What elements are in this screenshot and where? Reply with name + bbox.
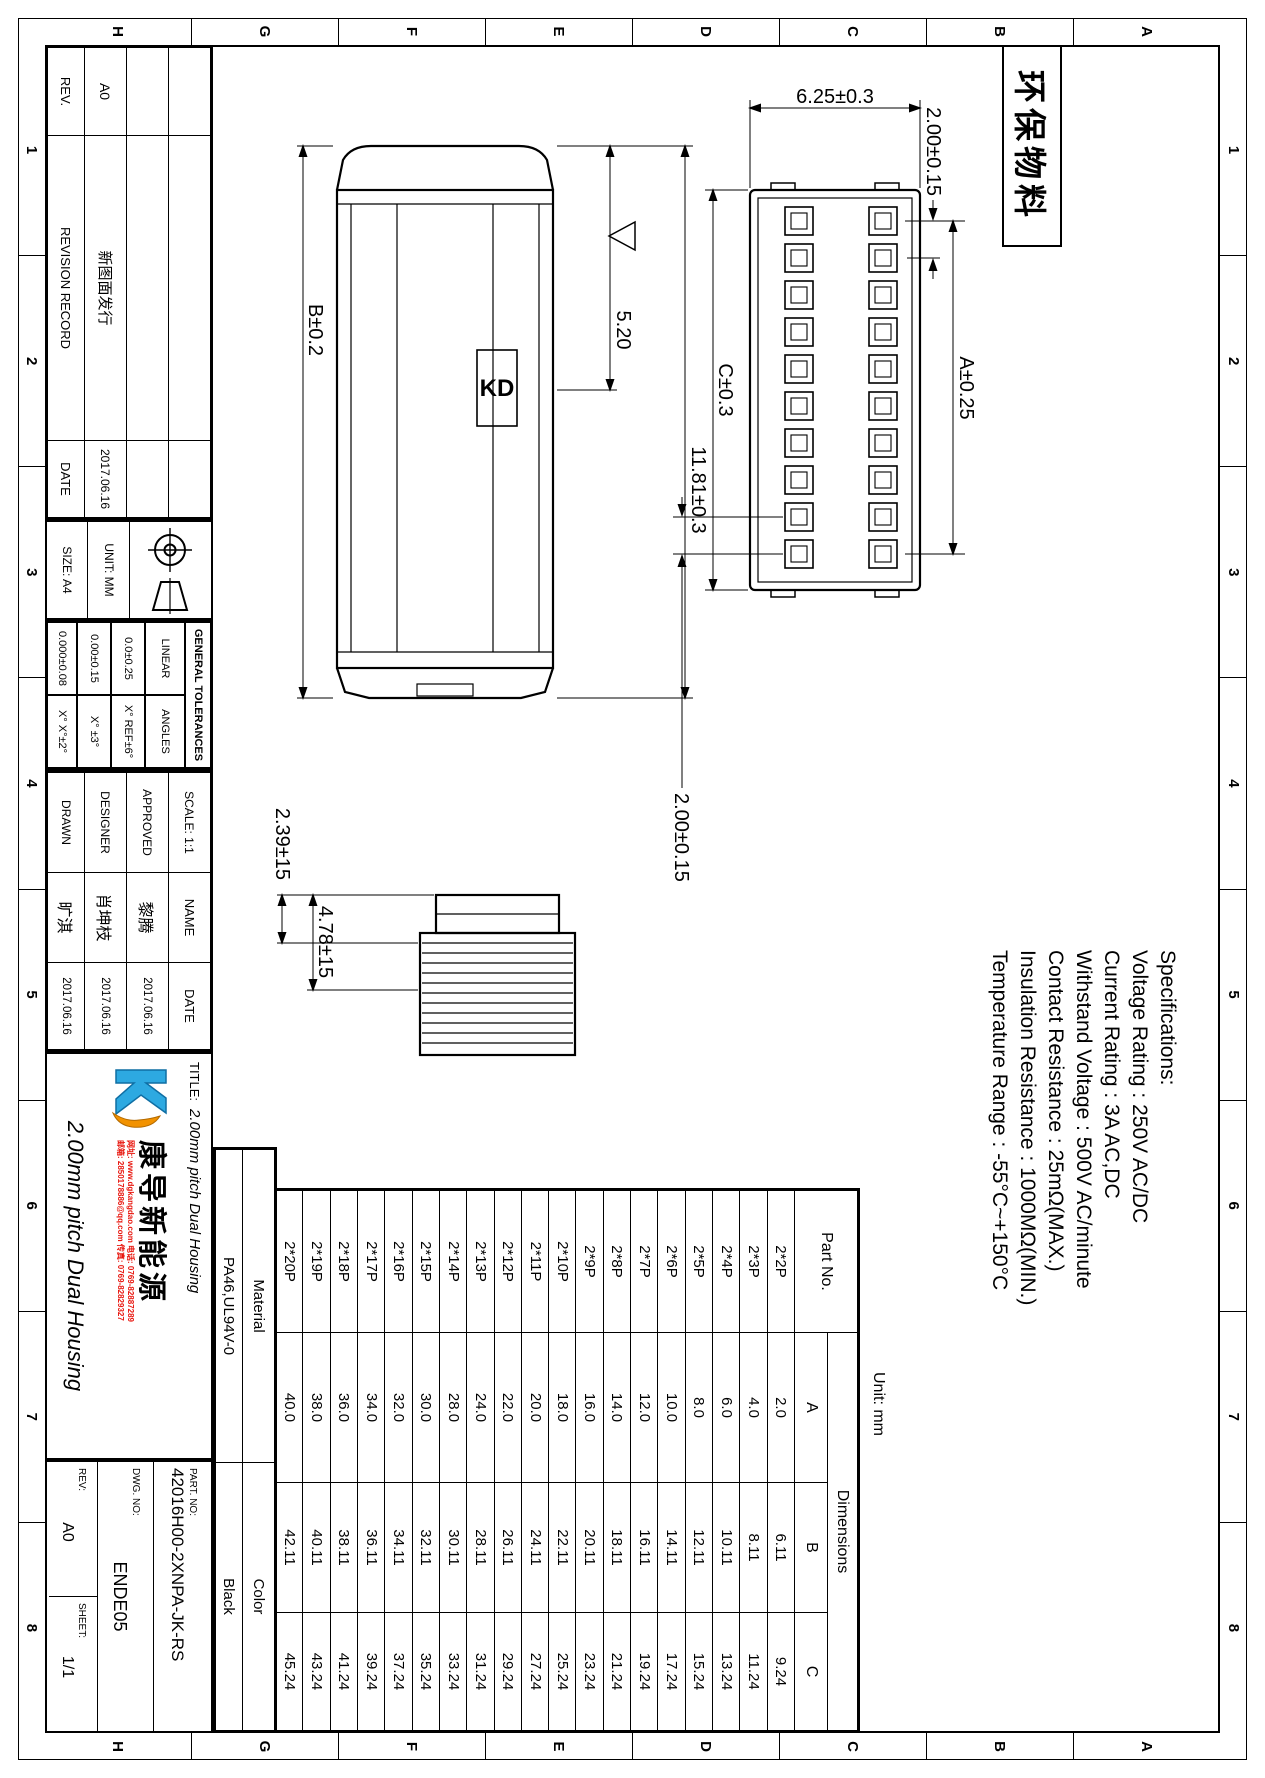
angles-label: ANGLES: [145, 695, 185, 768]
dim-c-cell: 41.24: [330, 1613, 357, 1731]
scale-cell: SCALE: 1:1: [169, 773, 211, 873]
part-number-cell: 2*5P: [685, 1191, 712, 1333]
parts-table-header-partno: Part No.: [795, 1191, 858, 1333]
dim-pitch-bottom: 2.00±0.15: [670, 793, 692, 882]
parts-table-header-c: C: [795, 1613, 828, 1731]
dim-a-cell: 8.0: [685, 1333, 712, 1483]
dim-c-cell: 11.24: [740, 1613, 767, 1731]
part-number-cell: 2*9P: [576, 1191, 603, 1333]
dim-b-cell: 14.11: [658, 1483, 685, 1613]
kd-logo-icon: [110, 1064, 172, 1132]
linear-tol-2: 0.00±0.15: [77, 622, 111, 695]
contact-cavities: [785, 207, 897, 568]
side-view: [337, 146, 635, 698]
angle-tol-3: X° X°±2°: [47, 695, 77, 768]
part-number-cell: 2*3P: [740, 1191, 767, 1333]
revision-rev-label: REV.: [48, 48, 85, 136]
parts-table-row: 2*17P 34.0 36.11 39.24: [358, 1191, 385, 1731]
dim-a-cell: 6.0: [713, 1333, 740, 1483]
dim-c-cell: 43.24: [303, 1613, 330, 1731]
dim-a-cell: 38.0: [303, 1333, 330, 1483]
dim-c-cell: 31.24: [467, 1613, 494, 1731]
dim-a: A±0.25: [955, 356, 977, 419]
drawn-name: 旷淇: [48, 873, 85, 963]
part-number-cell: 2*12P: [494, 1191, 521, 1333]
material-color-block: Material Color PA46,UL94V-0 Black: [213, 1147, 277, 1733]
approved-date: 2017.06.16: [127, 963, 169, 1050]
revision-table: A0 新图面发行 2017.06.16 REV. REVISION RECORD…: [45, 45, 213, 520]
dim-a-cell: 40.0: [276, 1333, 303, 1483]
dim-a-cell: 34.0: [358, 1333, 385, 1483]
dim-b-cell: 24.11: [521, 1483, 548, 1613]
angle-tol-1: X° REF±6°: [111, 695, 145, 768]
dim-c-cell: 23.24: [576, 1613, 603, 1731]
dim-c-cell: 21.24: [603, 1613, 630, 1731]
parts-table-row: 2*7P 12.0 16.11 19.24: [631, 1191, 658, 1731]
dim-c-cell: 9.24: [767, 1613, 794, 1731]
dim-b-cell: 28.11: [467, 1483, 494, 1613]
partno-cell: PART. NO: 42016H00-2XNPA-JK-RS DWG. NO: …: [45, 1460, 213, 1733]
dim-b-cell: 18.11: [603, 1483, 630, 1613]
part-number-cell: 2*20P: [276, 1191, 303, 1333]
parts-table-row: 2*6P 10.0 14.11 17.24: [658, 1191, 685, 1731]
dim-a-cell: 18.0: [549, 1333, 576, 1483]
end-view: [420, 895, 575, 1055]
approved-label: APPROVED: [127, 773, 169, 873]
part-number-cell: 2*18P: [330, 1191, 357, 1333]
date-header: DATE: [169, 963, 211, 1050]
part-no-value: 42016H00-2XNPA-JK-RS: [167, 1468, 187, 1661]
rev-label: REV:: [77, 1468, 88, 1596]
revision-date-label: DATE: [48, 441, 85, 518]
parts-table: Part No. Dimensions A B C 2*2P 2.0 6.11 …: [273, 1188, 860, 1733]
dim-c-cell: 29.24: [494, 1613, 521, 1731]
dim-a-cell: 24.0: [467, 1333, 494, 1483]
dim-239: 2.39±15: [271, 808, 293, 880]
dim-b-cell: 12.11: [685, 1483, 712, 1613]
dim-c-cell: 27.24: [521, 1613, 548, 1731]
parts-table-row: 2*11P 20.0 24.11 27.24: [521, 1191, 548, 1731]
part-number-cell: 2*13P: [467, 1191, 494, 1333]
dim-b: B±0.2: [304, 304, 326, 356]
parts-table-row: 2*19P 38.0 40.11 43.24: [303, 1191, 330, 1731]
dim-b-cell: 42.11: [276, 1483, 303, 1613]
dim-b-cell: 26.11: [494, 1483, 521, 1613]
part-number-cell: 2*8P: [603, 1191, 630, 1333]
parts-table-row: 2*10P 18.0 22.11 25.24: [549, 1191, 576, 1731]
dim-c-cell: 25.24: [549, 1613, 576, 1731]
part-number-cell: 2*2P: [767, 1191, 794, 1333]
signature-block: SCALE: 1:1 NAME DATE APPROVED 黎腾 2017.06…: [45, 770, 213, 1052]
parts-table-row: 2*14P 28.0 30.11 33.24: [439, 1191, 466, 1731]
part-number-cell: 2*6P: [658, 1191, 685, 1333]
gate-mark-triangle: [609, 222, 635, 250]
dim-c-cell: 37.24: [385, 1613, 412, 1731]
dim-b-cell: 22.11: [549, 1483, 576, 1613]
unit-label: UNIT: MM: [88, 522, 130, 618]
material-value: PA46,UL94V-0: [216, 1150, 243, 1463]
name-header: NAME: [169, 873, 211, 963]
designer-date: 2017.06.16: [85, 963, 127, 1050]
parts-table-row: 2*9P 16.0 20.11 23.24: [576, 1191, 603, 1731]
dim-a-cell: 20.0: [521, 1333, 548, 1483]
revision-desc-value: 新图面发行: [85, 136, 127, 441]
part-number-cell: 2*4P: [713, 1191, 740, 1333]
tolerances-block: GENERAL TOLERANCES LINEAR ANGLES 0.0±0.2…: [45, 620, 213, 770]
dim-a-cell: 4.0: [740, 1333, 767, 1483]
drawing-sheet: 12345678 12345678 ABCDEFGH ABCDEFGH 环保物料…: [0, 0, 1265, 1778]
parts-table-row: 2*3P 4.0 8.11 11.24: [740, 1191, 767, 1731]
parts-table-header-dimensions: Dimensions: [828, 1333, 858, 1731]
parts-table-row: 2*2P 2.0 6.11 9.24: [767, 1191, 794, 1731]
dim-a-cell: 2.0: [767, 1333, 794, 1483]
part-number-cell: 2*15P: [412, 1191, 439, 1333]
unit-note: Unit: mm: [869, 1372, 887, 1436]
dim-a-cell: 22.0: [494, 1333, 521, 1483]
dim-b-cell: 10.11: [713, 1483, 740, 1613]
logo-contact-line2: 邮箱: 2850178886@qq.com 传真: 0769-82829327: [115, 1140, 125, 1322]
designer-label: DESIGNER: [85, 773, 127, 873]
title-label: TITLE:: [188, 1062, 203, 1101]
revision-date-value: 2017.06.16: [85, 441, 127, 518]
dim-a-cell: 12.0: [631, 1333, 658, 1483]
parts-table-row: 2*8P 14.0 18.11 21.24: [603, 1191, 630, 1731]
side-view-dimensions: [297, 146, 693, 698]
dim-b-cell: 8.11: [740, 1483, 767, 1613]
part-number-cell: 2*19P: [303, 1191, 330, 1333]
dim-478: 4.78±15: [314, 906, 336, 978]
front-view-dimensions: [673, 100, 965, 788]
dim-c-cell: 33.24: [439, 1613, 466, 1731]
part-number-cell: 2*16P: [385, 1191, 412, 1333]
revision-desc-label: REVISION RECORD: [48, 136, 85, 441]
dim-c: C±0.3: [714, 363, 736, 416]
dim-b-cell: 38.11: [330, 1483, 357, 1613]
projection-size-block: UNIT: MM SIZE: A4: [45, 520, 213, 620]
dim-pitch-top: 2.00±0.15: [922, 107, 944, 196]
dim-c-cell: 45.24: [276, 1613, 303, 1731]
parts-table-row: 2*15P 30.0 32.11 35.24: [412, 1191, 439, 1731]
dim-b-cell: 20.11: [576, 1483, 603, 1613]
color-label: Color: [243, 1463, 275, 1731]
color-value: Black: [216, 1463, 243, 1731]
dim-b-cell: 32.11: [412, 1483, 439, 1613]
drawing-page: 12345678 12345678 ABCDEFGH ABCDEFGH 环保物料…: [0, 0, 1265, 1778]
parts-table-row: 2*20P 40.0 42.11 45.24: [276, 1191, 303, 1731]
parts-table-header-b: B: [795, 1483, 828, 1613]
approved-name: 黎腾: [127, 873, 169, 963]
dim-a-cell: 14.0: [603, 1333, 630, 1483]
part-number-cell: 2*10P: [549, 1191, 576, 1333]
dim-a-cell: 32.0: [385, 1333, 412, 1483]
front-view: [750, 183, 920, 597]
dim-a-cell: 16.0: [576, 1333, 603, 1483]
parts-table-row: 2*4P 6.0 10.11 13.24: [713, 1191, 740, 1731]
kd-mark: KD: [480, 375, 515, 402]
dim-b-cell: 36.11: [358, 1483, 385, 1613]
material-label: Material: [243, 1150, 275, 1463]
dim-1181: 11.81±0.3: [687, 446, 709, 533]
parts-table-row: 2*5P 8.0 12.11 15.24: [685, 1191, 712, 1731]
angle-tol-2: X° ±3°: [77, 695, 111, 768]
end-view-dimensions: [277, 895, 434, 990]
dim-b-cell: 16.11: [631, 1483, 658, 1613]
parts-table-header-a: A: [795, 1333, 828, 1483]
parts-table-row: 2*13P 24.0 28.11 31.24: [467, 1191, 494, 1731]
drawn-date: 2017.06.16: [48, 963, 85, 1050]
parts-table-row: 2*12P 22.0 26.11 29.24: [494, 1191, 521, 1731]
dim-a-cell: 36.0: [330, 1333, 357, 1483]
dwg-no-value: ENDE05: [110, 1561, 131, 1631]
dim-c-cell: 19.24: [631, 1613, 658, 1731]
third-angle-projection-symbol: [129, 522, 211, 618]
tolerances-title: GENERAL TOLERANCES: [185, 622, 211, 768]
drawing-title-small: 2.00mm pitch Dual Housing: [187, 1109, 204, 1293]
sheet-label: SHEET:: [77, 1603, 88, 1731]
part-number-cell: 2*11P: [521, 1191, 548, 1333]
logo-brand-text: 康导新能源: [135, 1140, 167, 1322]
part-no-label: PART. NO:: [187, 1468, 198, 1516]
linear-tol-3: 0.000±0.08: [47, 622, 77, 695]
parts-table-row: 2*16P 32.0 34.11 37.24: [385, 1191, 412, 1731]
dim-c-cell: 35.24: [412, 1613, 439, 1731]
logo-contact-line1: 网址: www.dgkangdao.com 电话: 0769-82887289: [125, 1140, 135, 1322]
size-label: SIZE: A4: [47, 522, 88, 618]
linear-tol-1: 0.0±0.25: [111, 622, 145, 695]
part-number-cell: 2*14P: [439, 1191, 466, 1333]
dim-a-cell: 10.0: [658, 1333, 685, 1483]
dim-c-cell: 13.24: [713, 1613, 740, 1731]
title-logo-cell: TITLE: 2.00mm pitch Dual Housing 康导新能源 网…: [45, 1052, 213, 1460]
dim-a-cell: 28.0: [439, 1333, 466, 1483]
dim-520: 5.20: [612, 311, 634, 350]
linear-label: LINEAR: [145, 622, 185, 695]
drawn-label: DRAWN: [48, 773, 85, 873]
part-number-cell: 2*7P: [631, 1191, 658, 1333]
dim-a-cell: 30.0: [412, 1333, 439, 1483]
dim-625: 6.25±0.3: [796, 86, 874, 108]
parts-table-row: 2*18P 36.0 38.11 41.24: [330, 1191, 357, 1731]
dim-c-cell: 17.24: [658, 1613, 685, 1731]
designer-name: 肖坤枝: [85, 873, 127, 963]
dim-b-cell: 30.11: [439, 1483, 466, 1613]
dwg-no-label: DWG. NO:: [131, 1468, 142, 1516]
rev-value: A0: [59, 1522, 77, 1542]
drawing-title-large: 2.00mm pitch Dual Housing: [62, 1121, 88, 1391]
dim-c-cell: 39.24: [358, 1613, 385, 1731]
sheet-value: 1/1: [59, 1656, 77, 1678]
dim-c-cell: 15.24: [685, 1613, 712, 1731]
dim-b-cell: 34.11: [385, 1483, 412, 1613]
part-number-cell: 2*17P: [358, 1191, 385, 1333]
revision-rev-value: A0: [85, 48, 127, 136]
dim-b-cell: 6.11: [767, 1483, 794, 1613]
dim-b-cell: 40.11: [303, 1483, 330, 1613]
